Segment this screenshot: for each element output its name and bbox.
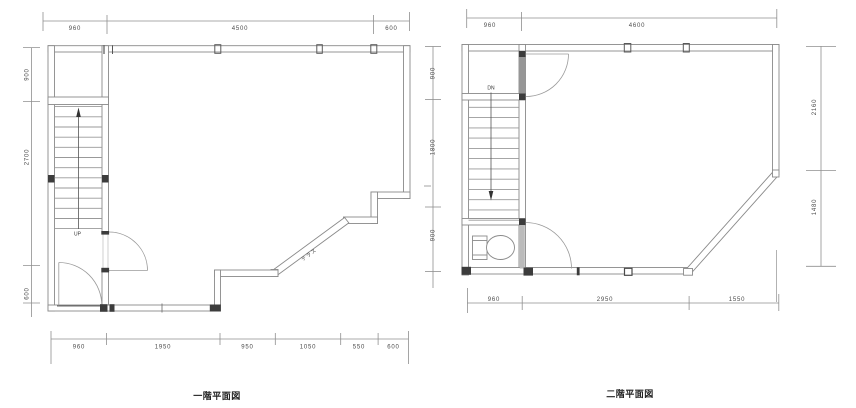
svg-text:2700: 2700 — [25, 149, 31, 166]
svg-text:960: 960 — [488, 297, 500, 303]
svg-text:600: 600 — [25, 287, 31, 299]
svg-text:2950: 2950 — [597, 297, 614, 303]
svg-text:550: 550 — [353, 345, 365, 351]
svg-text:2160: 2160 — [812, 99, 818, 116]
svg-text:960: 960 — [73, 345, 85, 351]
svg-text:4600: 4600 — [629, 23, 646, 29]
svg-text:960: 960 — [69, 26, 81, 32]
svg-text:UP: UP — [74, 232, 82, 238]
svg-text:600: 600 — [385, 26, 397, 32]
svg-text:1480: 1480 — [812, 199, 818, 216]
svg-text:1550: 1550 — [729, 297, 746, 303]
svg-text:DN: DN — [487, 86, 495, 92]
svg-text:960: 960 — [484, 23, 496, 29]
svg-text:二階平面図: 二階平面図 — [606, 388, 654, 399]
svg-text:950: 950 — [241, 345, 253, 351]
svg-text:4500: 4500 — [232, 26, 249, 32]
svg-text:1950: 1950 — [155, 345, 172, 351]
svg-text:1800: 1800 — [431, 139, 437, 156]
svg-text:900: 900 — [431, 67, 437, 79]
svg-text:900: 900 — [431, 229, 437, 241]
svg-text:900: 900 — [25, 68, 31, 80]
svg-text:一階平面図: 一階平面図 — [193, 390, 241, 401]
svg-text:600: 600 — [387, 345, 399, 351]
svg-text:1050: 1050 — [300, 345, 317, 351]
